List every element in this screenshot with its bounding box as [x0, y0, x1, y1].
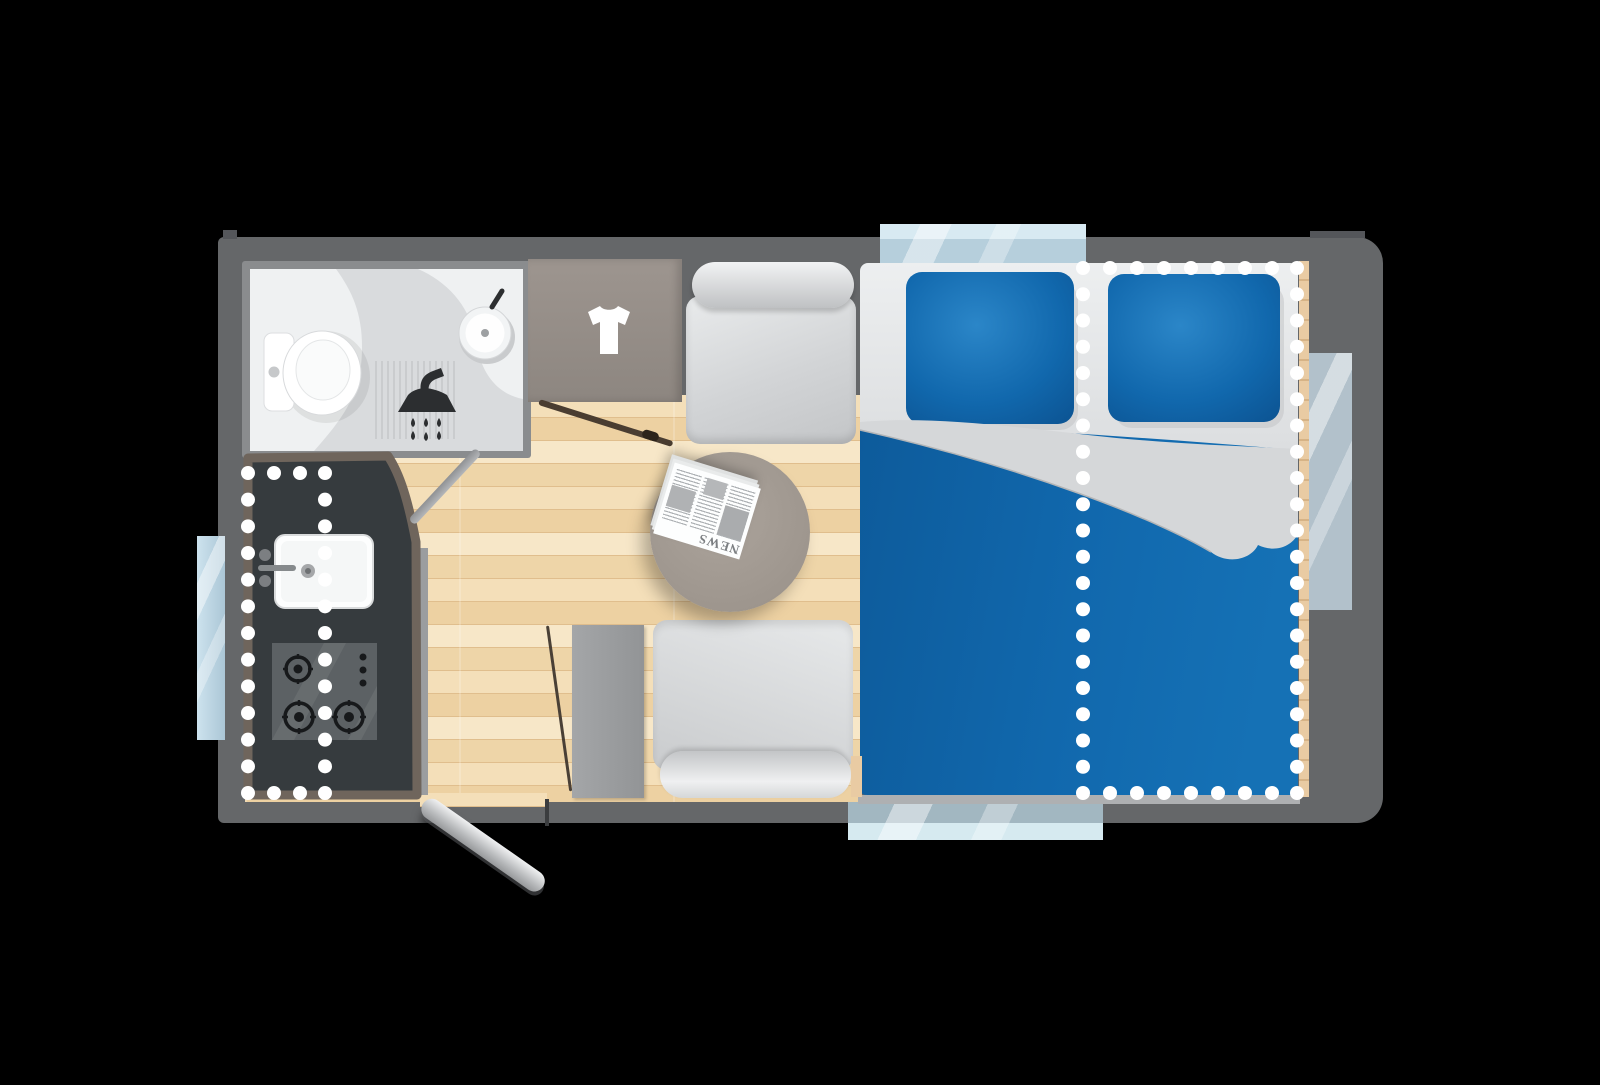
- window-right: [1307, 353, 1352, 610]
- faucet-icon: [258, 565, 296, 571]
- bathroom: [250, 269, 523, 451]
- kitchen-counter: [248, 456, 417, 795]
- hob-icon: [272, 643, 377, 740]
- door-frame: [545, 799, 549, 826]
- bench-backrest-rear: [660, 751, 851, 798]
- pillow-right: [1108, 274, 1280, 422]
- sideboard-cabinet: [572, 625, 644, 798]
- window-left: [197, 536, 225, 740]
- bench-seat-rear: [653, 620, 853, 770]
- toilet-icon: [264, 331, 370, 423]
- window-reflection: [197, 536, 225, 740]
- kitchen-unit: [240, 450, 440, 802]
- double-bed: [858, 258, 1300, 798]
- bench-backrest-front: [692, 262, 854, 308]
- pillow-left: [906, 272, 1074, 424]
- roof-fitting: [1310, 231, 1365, 238]
- caravan-floor-plan: NEWS: [0, 0, 1600, 1085]
- window-reflection: [1307, 353, 1352, 610]
- hob-controls: [360, 654, 367, 687]
- roof-fitting: [223, 230, 237, 239]
- bed-frame-edge: [1299, 261, 1309, 797]
- tshirt-icon: [584, 303, 634, 357]
- sink-icon: [258, 535, 373, 608]
- bench-seat-front: [686, 296, 856, 444]
- bed-frame-edge: [851, 756, 862, 797]
